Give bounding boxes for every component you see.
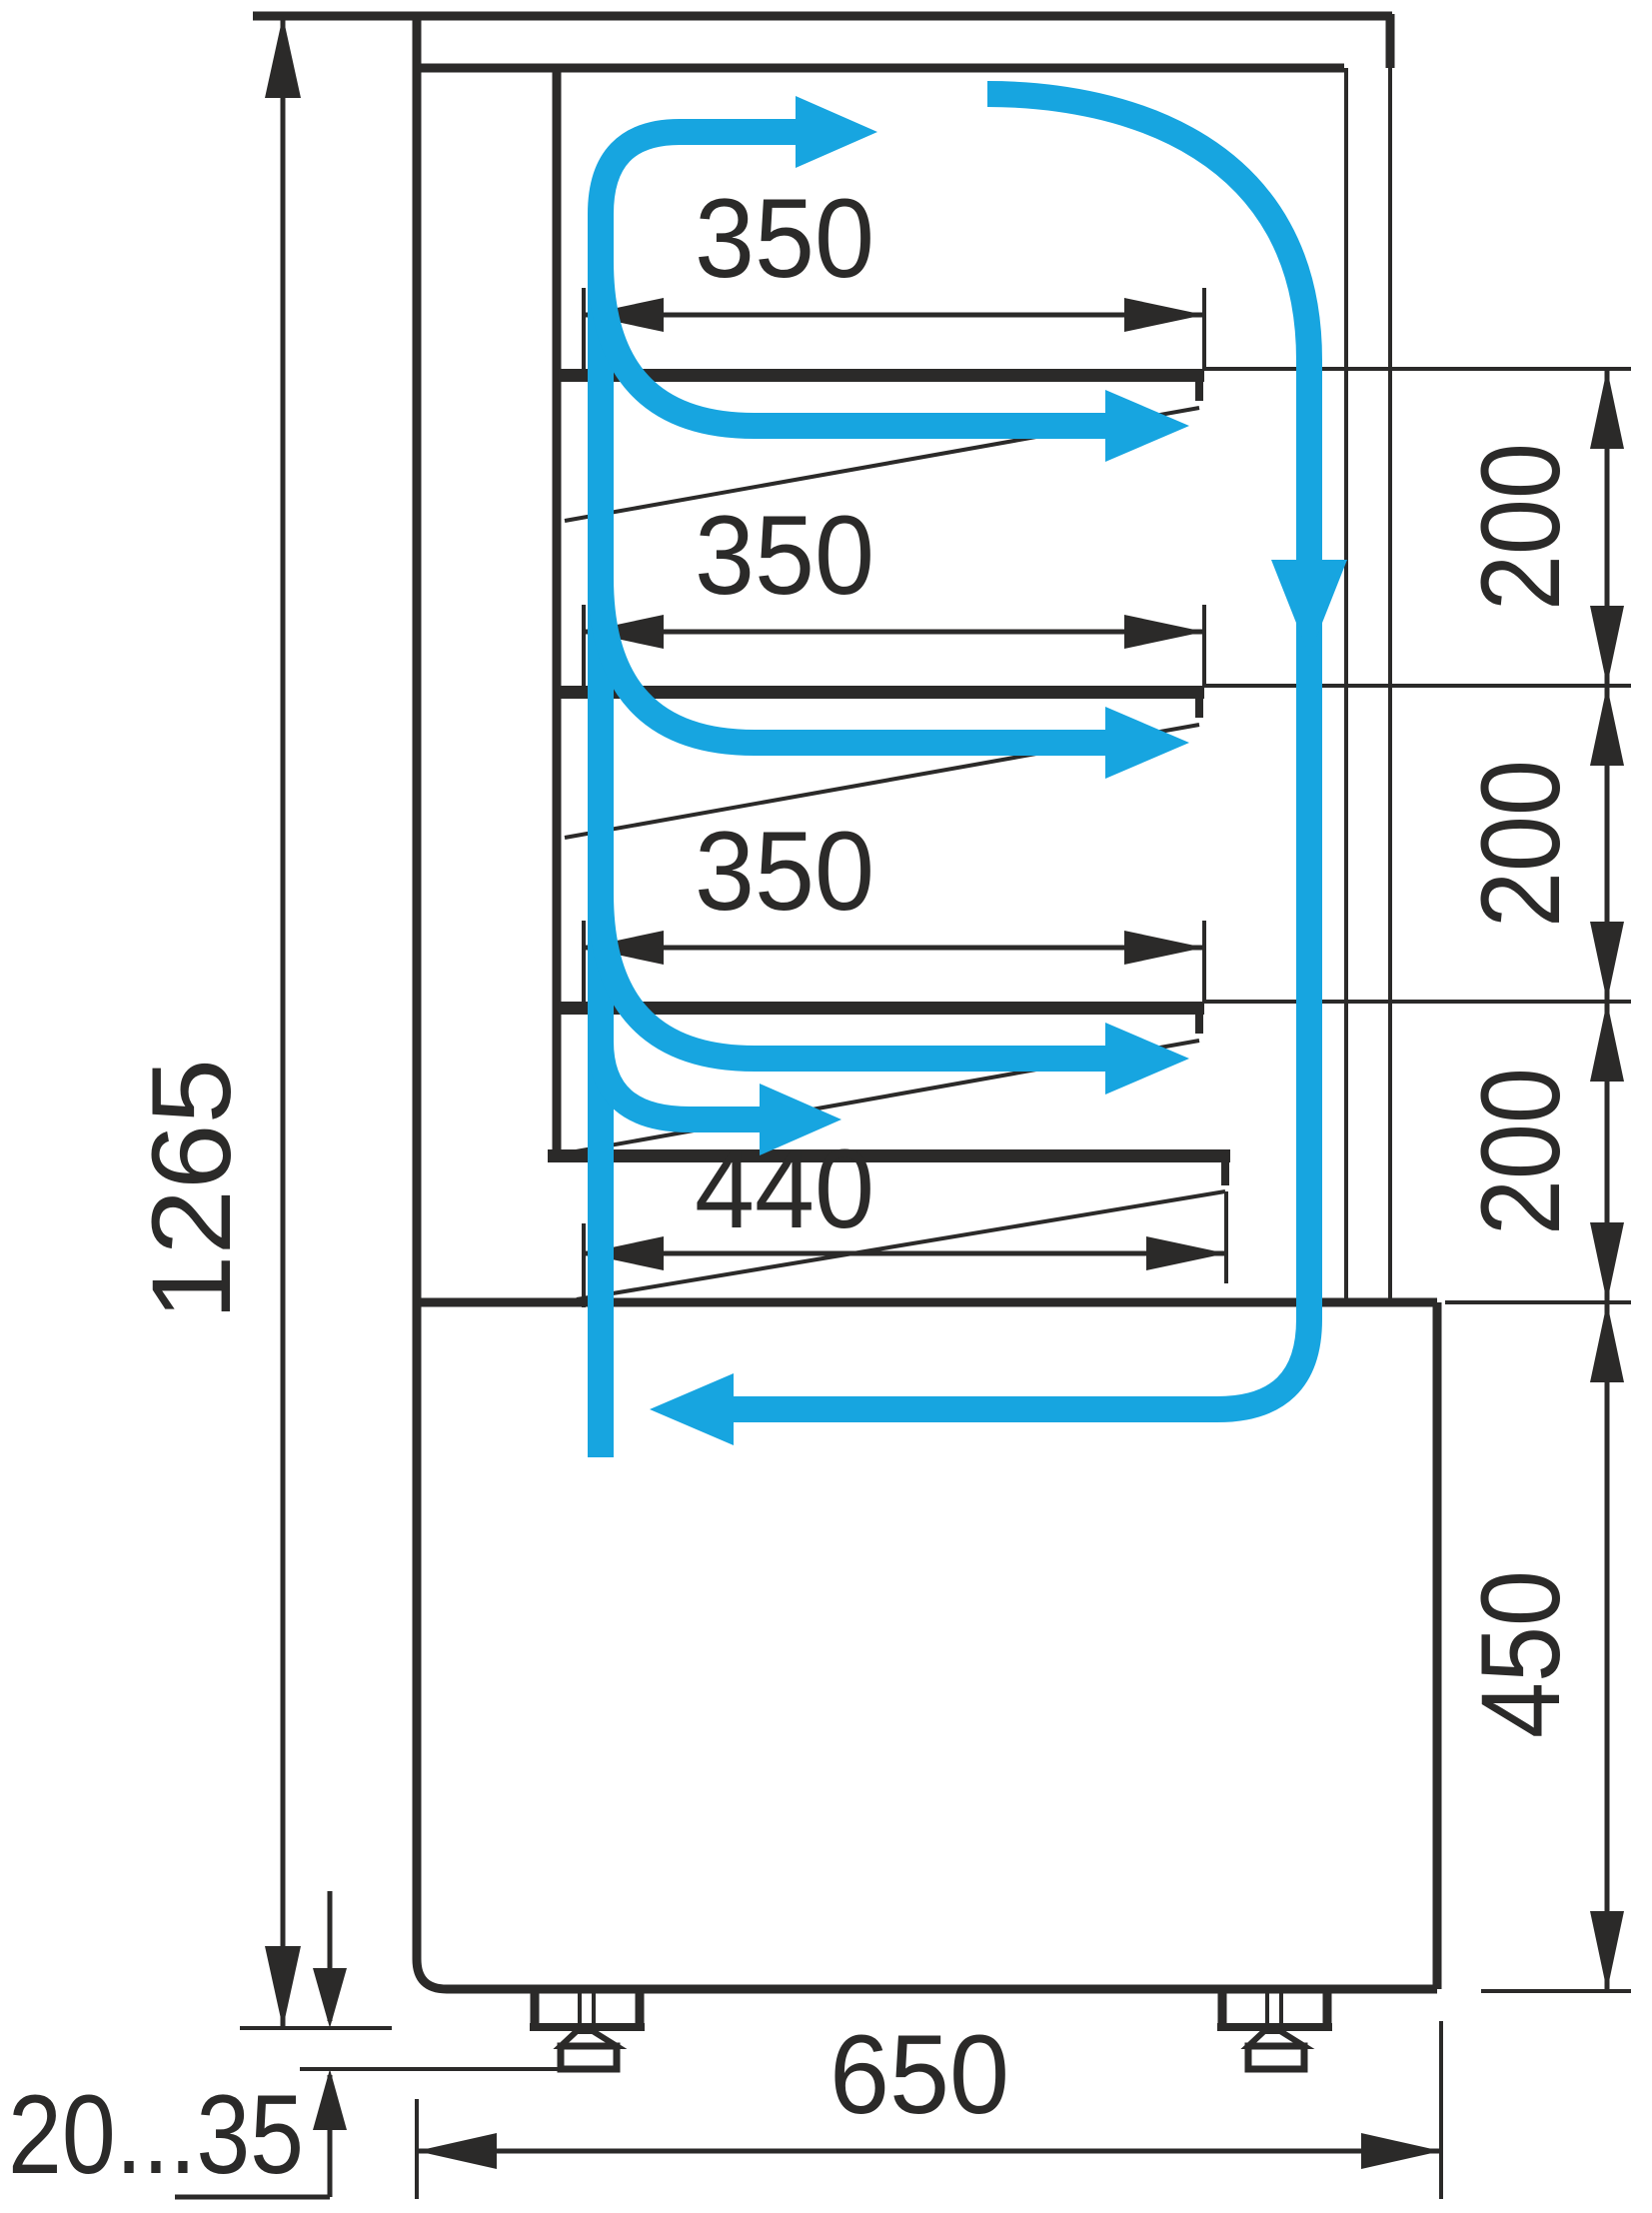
dim-overall-depth-label: 650	[829, 2012, 1009, 2137]
dim-overall-height-label: 1265	[129, 1059, 254, 1320]
arrow-down-icon	[1590, 606, 1624, 686]
leg-right-foot	[1248, 2046, 1304, 2069]
arrow-down-icon	[1590, 922, 1624, 1002]
airflow-down-arrow-icon	[1271, 560, 1347, 656]
arrow-right-icon	[1124, 615, 1204, 649]
airflow-return-arrow-icon	[650, 1373, 734, 1445]
bottom-shelf-air-deflector	[577, 1191, 1225, 1299]
dim-overall-height: 1265	[129, 16, 392, 2028]
arrow-up-icon	[1590, 686, 1624, 766]
dim-gap-200-1-label: 200	[1458, 443, 1583, 611]
dim-bottom-shelf-depth-label: 440	[695, 1126, 874, 1251]
dim-shelf-3-depth: 350	[584, 809, 1204, 1006]
dim-shelf-2-depth: 350	[584, 493, 1204, 690]
arrow-right-icon	[1361, 2133, 1441, 2169]
arrow-down-icon	[1590, 1911, 1624, 1991]
dim-shelf-2-depth-label: 350	[695, 493, 874, 618]
dim-gap-200-2-label: 200	[1458, 760, 1583, 928]
leg-right	[1217, 1989, 1332, 2069]
dim-shelf-1-depth: 350	[584, 176, 1204, 373]
arrow-down-icon	[1590, 1222, 1624, 1302]
airflow-top-arrow-icon	[796, 96, 877, 168]
airflow-shelf-1-arrow-icon	[1105, 390, 1189, 462]
airflow-shelf-3-arrow-icon	[1105, 1023, 1189, 1095]
dim-base-height-label: 450	[1458, 1570, 1583, 1738]
arrow-up-icon	[1590, 1302, 1624, 1382]
leg-left-foot	[561, 2046, 617, 2069]
technical-drawing-canvas: 1265 20...35 650	[0, 0, 1652, 2213]
bottom-shelf-surface	[548, 1149, 1230, 1162]
arrow-up-icon	[1590, 369, 1624, 449]
bottom-shelf	[548, 1149, 1230, 1299]
arrow-up-icon	[265, 16, 301, 98]
shelf-1-surface	[557, 369, 1204, 382]
shelf-3-surface	[557, 1002, 1204, 1015]
arrow-right-icon	[1124, 931, 1204, 965]
airflow-shelf-2-arrow-icon	[1105, 707, 1189, 779]
dim-gap-200-3-label: 200	[1458, 1068, 1583, 1235]
display-case-section-drawing: 1265 20...35 650	[0, 0, 1652, 2213]
arrow-down-icon	[313, 1968, 347, 2028]
shelves	[548, 369, 1230, 1299]
arrow-right-icon	[1146, 1236, 1226, 1270]
arrow-right-icon	[1124, 298, 1204, 332]
arrow-up-icon	[313, 2069, 347, 2130]
shelf-2-surface	[557, 686, 1204, 699]
arrow-left-icon	[417, 2133, 497, 2169]
arrow-up-icon	[1590, 1002, 1624, 1082]
dim-shelf-3-depth-label: 350	[695, 809, 874, 934]
arrow-down-icon	[265, 1946, 301, 2028]
dim-leg-range-label: 20...35	[8, 2072, 304, 2197]
dim-right-chain: 200 200 200 450	[1204, 369, 1631, 1991]
leg-left	[530, 1989, 645, 2069]
dim-shelf-1-depth-label: 350	[695, 176, 874, 301]
